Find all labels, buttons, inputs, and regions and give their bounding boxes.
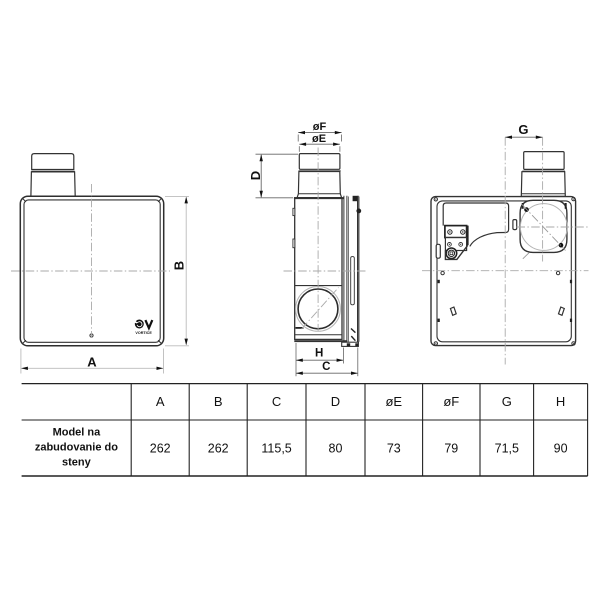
svg-text:115,5: 115,5 [261, 441, 291, 455]
svg-text:80: 80 [329, 441, 343, 455]
svg-text:262: 262 [208, 441, 229, 455]
svg-text:262: 262 [150, 441, 171, 455]
svg-text:B: B [171, 261, 186, 270]
svg-text:D: D [331, 394, 340, 409]
svg-text:G: G [502, 394, 512, 409]
svg-text:79: 79 [444, 441, 458, 455]
svg-text:C: C [272, 394, 281, 409]
svg-text:øE: øE [385, 394, 402, 409]
svg-text:øE: øE [312, 133, 326, 145]
svg-text:G: G [518, 122, 528, 137]
svg-text:73: 73 [387, 441, 401, 455]
svg-text:H: H [315, 348, 323, 360]
svg-text:VORTICE: VORTICE [135, 331, 152, 335]
svg-text:zabudovanie do: zabudovanie do [35, 441, 118, 453]
svg-text:D: D [248, 171, 263, 180]
svg-text:90: 90 [554, 441, 568, 455]
svg-text:A: A [156, 394, 165, 409]
svg-text:Model na: Model na [53, 426, 102, 438]
svg-text:C: C [322, 361, 330, 373]
svg-text:øF: øF [313, 121, 327, 133]
svg-text:øF: øF [443, 394, 459, 409]
svg-text:H: H [556, 394, 565, 409]
svg-text:steny: steny [62, 456, 92, 468]
svg-text:B: B [214, 394, 223, 409]
svg-text:71,5: 71,5 [495, 441, 519, 455]
svg-text:A: A [87, 355, 97, 370]
